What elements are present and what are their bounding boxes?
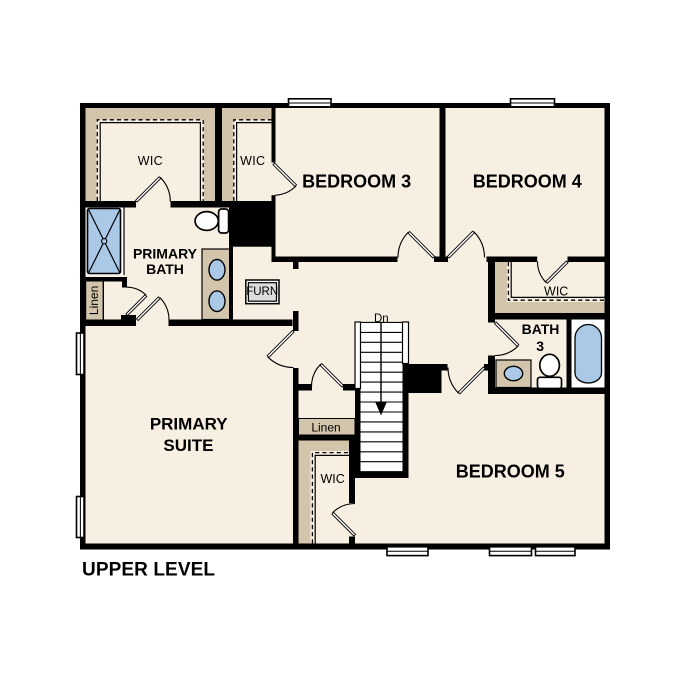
svg-text:Linen: Linen (311, 420, 340, 434)
svg-text:FURN: FURN (246, 286, 278, 298)
svg-text:PRIMARY: PRIMARY (150, 415, 228, 434)
svg-text:3: 3 (536, 338, 544, 354)
svg-text:BATH: BATH (522, 321, 560, 337)
svg-text:PRIMARY: PRIMARY (133, 246, 198, 262)
svg-text:WIC: WIC (320, 472, 344, 486)
svg-text:BEDROOM 4: BEDROOM 4 (473, 172, 582, 192)
svg-text:WIC: WIC (138, 154, 163, 168)
svg-text:WIC: WIC (240, 154, 265, 168)
svg-text:Linen: Linen (87, 286, 101, 315)
svg-text:UPPER LEVEL: UPPER LEVEL (82, 560, 215, 581)
svg-text:SUITE: SUITE (163, 436, 213, 455)
svg-text:WIC: WIC (544, 285, 568, 299)
svg-text:Dn: Dn (374, 313, 389, 325)
svg-text:BATH: BATH (146, 261, 184, 277)
svg-text:BEDROOM 3: BEDROOM 3 (302, 172, 411, 192)
svg-text:BEDROOM 5: BEDROOM 5 (456, 462, 565, 482)
